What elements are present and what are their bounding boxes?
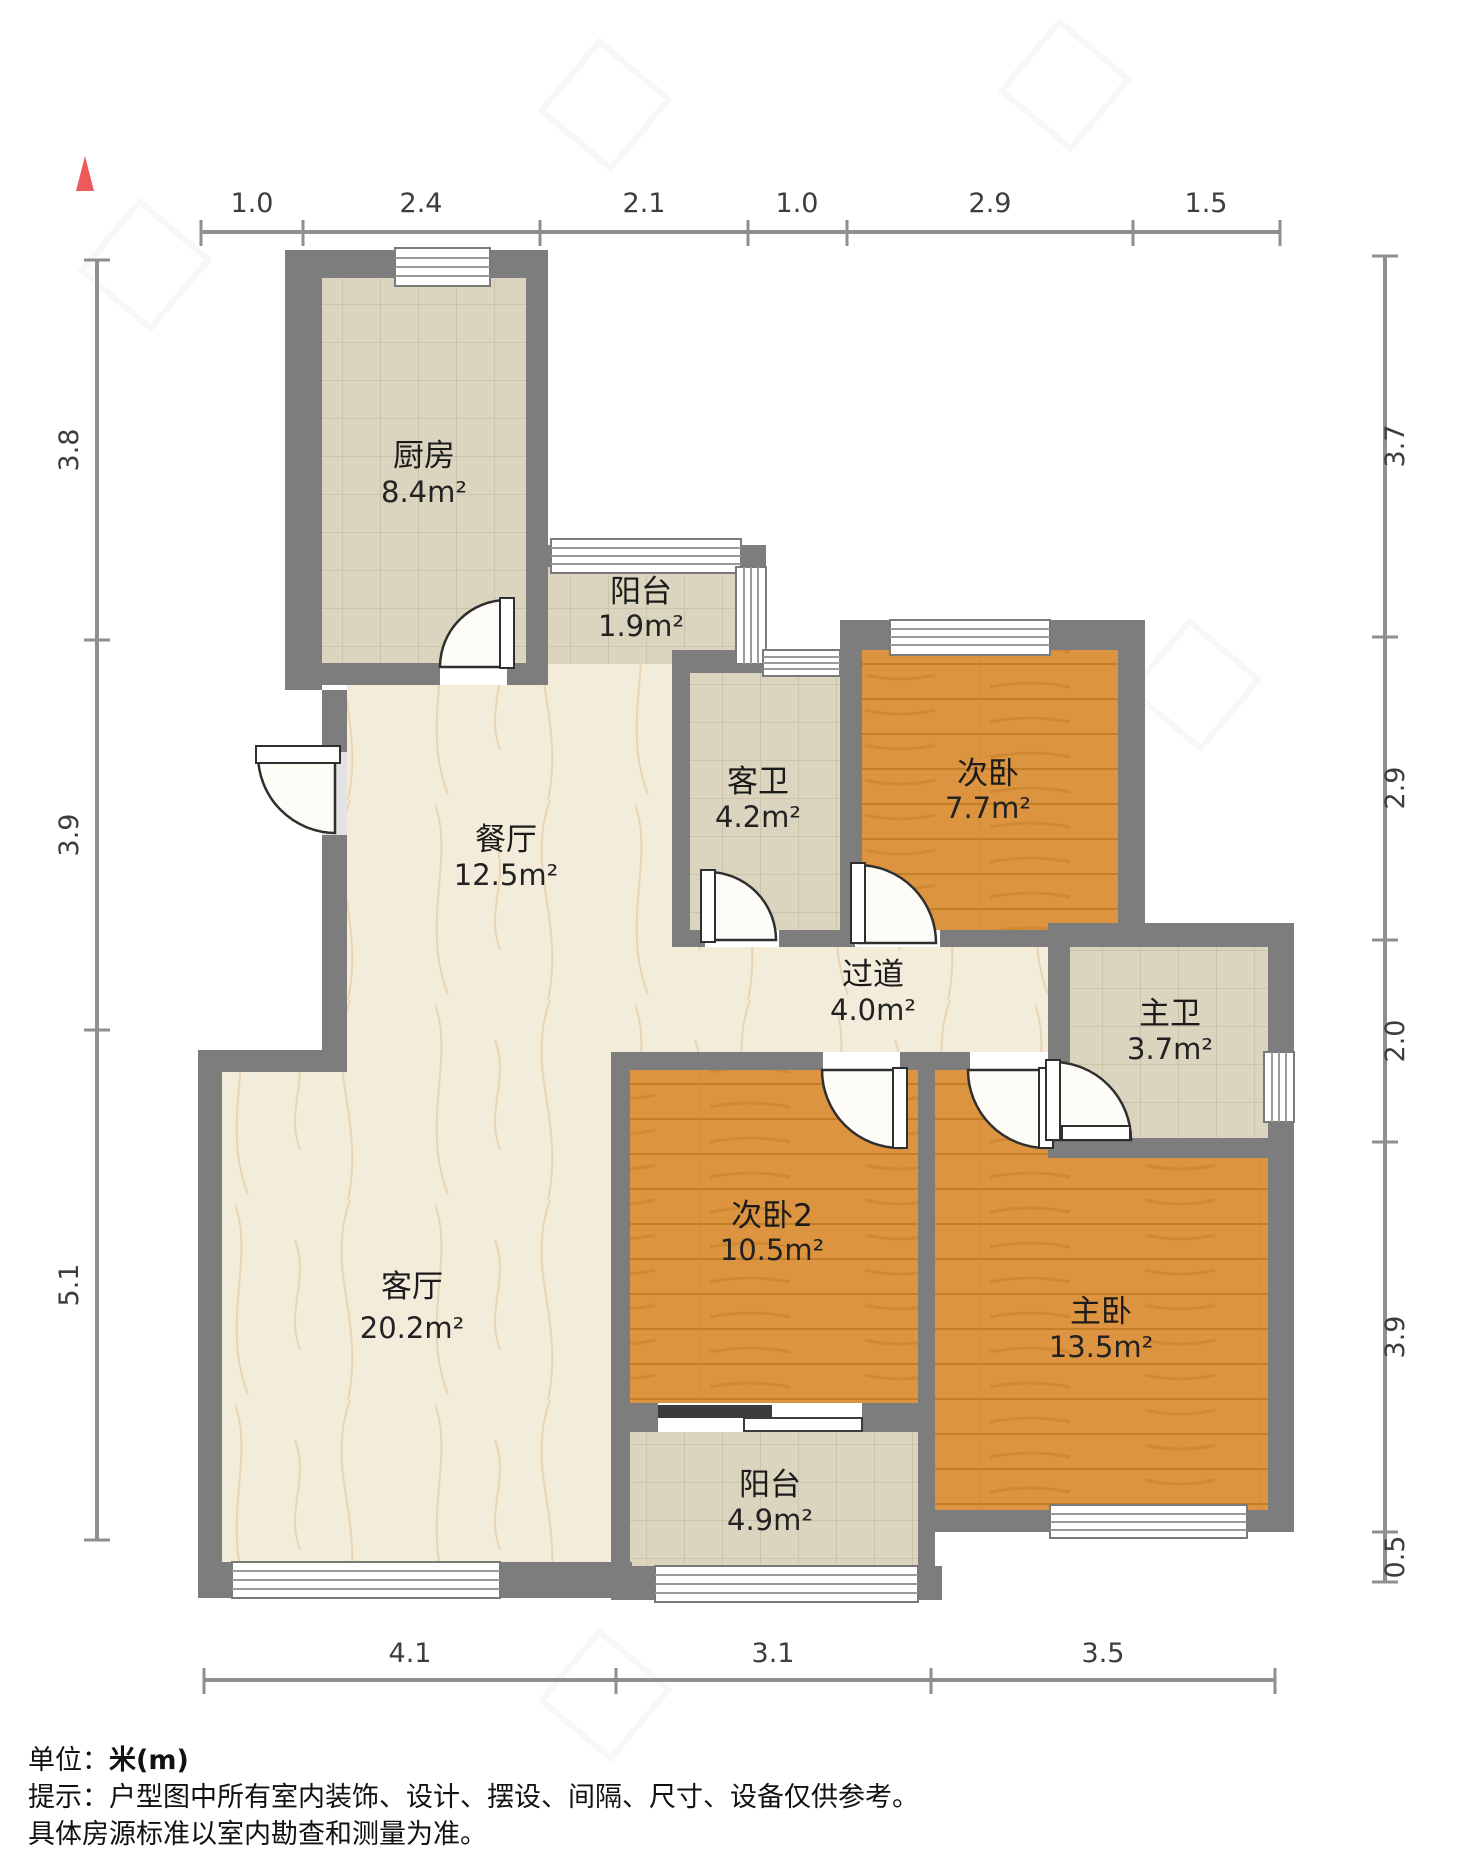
- dim-top-5: 1.5: [1185, 188, 1228, 219]
- dim-top-0: 1.0: [231, 188, 274, 219]
- floor-plan-svg: 厨房 8.4m² 阳台 1.9m² 客卫 4.2m² 次卧 7.7m² 餐厅 1…: [0, 0, 1481, 1869]
- guest-bathroom-label: 客卫: [727, 764, 789, 800]
- balcony-top-area: 1.9m²: [598, 609, 684, 643]
- dim-top-1: 2.4: [400, 188, 443, 219]
- balcony-bottom-area: 4.9m²: [727, 1503, 813, 1537]
- dim-top-3: 1.0: [776, 188, 819, 219]
- hallway-area: 4.0m²: [830, 993, 916, 1027]
- dim-bottom-1: 3.1: [752, 1638, 795, 1669]
- dim-bottom-0: 4.1: [389, 1638, 432, 1669]
- window-living-bottom: [232, 1562, 500, 1598]
- balcony-top-label: 阳台: [610, 574, 672, 610]
- tip-line-1: 提示：户型图中所有室内装饰、设计、摆设、间隔、尺寸、设备仅供参考。: [28, 1779, 919, 1816]
- dim-right-4: 0.5: [1380, 1536, 1411, 1579]
- hallway-label: 过道: [842, 957, 904, 993]
- dim-right-1: 2.9: [1380, 767, 1411, 810]
- floor-plan-page: 厨房 8.4m² 阳台 1.9m² 客卫 4.2m² 次卧 7.7m² 餐厅 1…: [0, 0, 1481, 1869]
- balcony-bottom-label: 阳台: [739, 1467, 801, 1503]
- kitchen-area: 8.4m²: [381, 475, 467, 509]
- window-master-bedroom-bottom: [1050, 1505, 1247, 1538]
- master-bathroom-label: 主卫: [1139, 996, 1201, 1032]
- dim-left-2: 5.1: [54, 1264, 85, 1307]
- dim-top-4: 2.9: [969, 188, 1012, 219]
- living-label: 客厅: [381, 1269, 443, 1305]
- second-bedroom-area: 7.7m²: [945, 791, 1031, 825]
- window-balcony-top-side: [736, 567, 766, 664]
- window-kitchen-top: [395, 248, 490, 286]
- dim-bottom-2: 3.5: [1082, 1638, 1125, 1669]
- dim-right-0: 3.7: [1380, 425, 1411, 468]
- unit-value: 米(m): [109, 1745, 189, 1776]
- master-bedroom-area: 13.5m²: [1049, 1330, 1153, 1364]
- second-bedroom-label: 次卧: [957, 756, 1019, 792]
- dim-right-2: 2.0: [1380, 1020, 1411, 1063]
- dim-left-1: 3.9: [54, 814, 85, 857]
- window-second-bedroom-top: [890, 620, 1050, 655]
- unit-note: 单位：米(m): [28, 1742, 919, 1779]
- second-bedroom-2-area: 10.5m²: [720, 1233, 824, 1267]
- door-entry: [256, 746, 347, 835]
- north-arrow-icon: [76, 156, 94, 191]
- dim-right-3: 3.9: [1380, 1316, 1411, 1359]
- footer-notes: 单位：米(m) 提示：户型图中所有室内装饰、设计、摆设、间隔、尺寸、设备仅供参考…: [28, 1742, 919, 1853]
- second-bedroom-2-label: 次卧2: [731, 1198, 813, 1234]
- kitchen-label: 厨房: [393, 438, 455, 474]
- dining-area: 12.5m²: [454, 858, 558, 892]
- window-master-bathroom-side: [1264, 1052, 1294, 1122]
- window-balcony-top: [551, 539, 741, 573]
- window-balcony-bottom: [655, 1566, 918, 1602]
- sliding-door-balcony-bottom: [658, 1405, 862, 1431]
- unit-label: 单位：: [28, 1745, 109, 1776]
- dim-left-0: 3.8: [54, 429, 85, 472]
- master-bathroom-area: 3.7m²: [1127, 1032, 1213, 1066]
- tip-line-2: 具体房源标准以室内勘查和测量为准。: [28, 1816, 919, 1853]
- dining-label: 餐厅: [475, 822, 537, 858]
- guest-bathroom-area: 4.2m²: [715, 800, 801, 834]
- window-guest-bathroom-top: [763, 650, 840, 676]
- living-area: 20.2m²: [360, 1311, 464, 1345]
- master-bedroom-label: 主卧: [1070, 1294, 1132, 1330]
- dim-top-2: 2.1: [623, 188, 666, 219]
